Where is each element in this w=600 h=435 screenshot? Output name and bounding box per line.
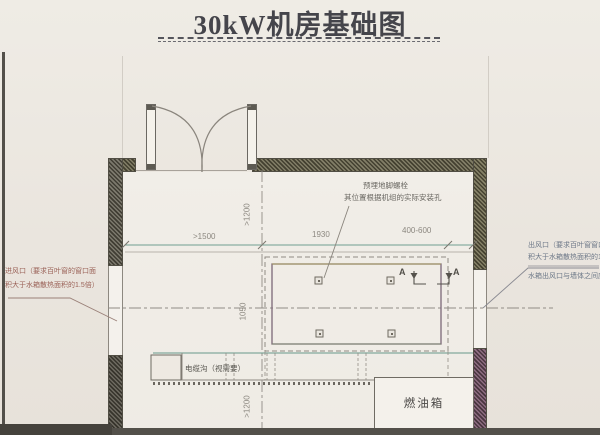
anchor-bolt-note-line1: 预埋地脚螺栓: [363, 180, 408, 191]
outlet-note-line1: 出风口（要求百叶窗窗口面: [528, 240, 600, 250]
inlet-note-line1: 进风口（要求百叶窗的窗口面: [5, 266, 96, 276]
dim-height-mid: 1050: [239, 292, 248, 332]
anchor-bolt: [316, 330, 323, 337]
drawing-linework: [0, 0, 600, 435]
fuel-tank-box: 燃油箱: [374, 377, 474, 430]
scan-edge-bottom-left: [0, 424, 112, 435]
dim-width-center: 1930: [312, 230, 330, 239]
scan-edge-left: [2, 52, 5, 435]
section-label-a-right: A: [453, 267, 460, 277]
dim-height-bottom: >1200: [243, 387, 252, 427]
leader-anchor-bolt-note: [324, 206, 349, 278]
anchor-bolt: [315, 277, 322, 284]
dim-width-left: >1500: [193, 232, 215, 241]
door-swing-arc-right: [202, 106, 251, 172]
fuel-tank-label: 燃油箱: [375, 395, 473, 411]
section-arrow-right: [446, 273, 453, 279]
anchor-bolt: [387, 277, 394, 284]
section-mark-left: [414, 271, 426, 284]
leader-inlet-note: [8, 298, 117, 321]
dim-height-top: >1200: [243, 195, 252, 235]
door-swing-arc-left: [152, 106, 202, 172]
cable-trench-label: 电缆沟（视需要）: [185, 363, 245, 374]
section-arrow-left: [411, 273, 418, 279]
inlet-note-line2: 积大于水箱散热面积的1.5倍）: [5, 280, 99, 290]
trench-end-box: [151, 355, 181, 380]
section-mark-right: [437, 271, 449, 284]
outlet-note-line2: 积大于水箱散热面积的1.5倍）: [528, 252, 600, 262]
outlet-note-line3: 水箱出风口与墙体之间应留: [528, 271, 600, 281]
blueprint-page: 30kW机房基础图: [0, 0, 600, 435]
foundation-outline-dashed: [265, 257, 448, 351]
anchor-bolt-note-line2: 其位置根据机组的实际安装孔: [344, 192, 442, 203]
trench-hatch-strip: [153, 382, 372, 385]
section-label-a-left: A: [399, 267, 406, 277]
anchor-bolt: [388, 330, 395, 337]
dim-width-right: 400-600: [402, 226, 431, 235]
